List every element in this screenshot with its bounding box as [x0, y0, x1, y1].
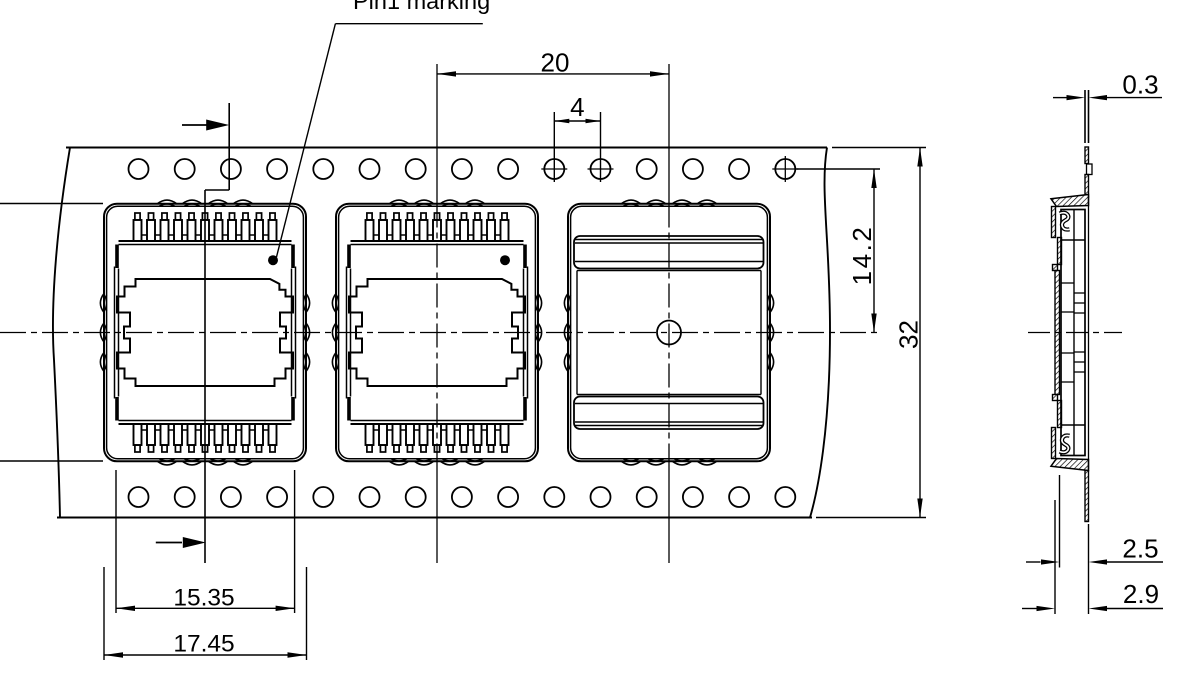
- svg-text:2.5: 2.5: [1122, 534, 1158, 564]
- svg-text:17.45: 17.45: [173, 631, 234, 658]
- svg-text:Pin1 marking: Pin1 marking: [353, 0, 490, 14]
- svg-text:2.9: 2.9: [1123, 579, 1159, 609]
- svg-text:4: 4: [570, 92, 584, 122]
- svg-text:0.3: 0.3: [1122, 70, 1158, 100]
- svg-text:14.2: 14.2: [847, 225, 877, 286]
- svg-text:32: 32: [894, 320, 924, 349]
- svg-text:20: 20: [541, 48, 570, 78]
- svg-text:15.35: 15.35: [173, 585, 234, 612]
